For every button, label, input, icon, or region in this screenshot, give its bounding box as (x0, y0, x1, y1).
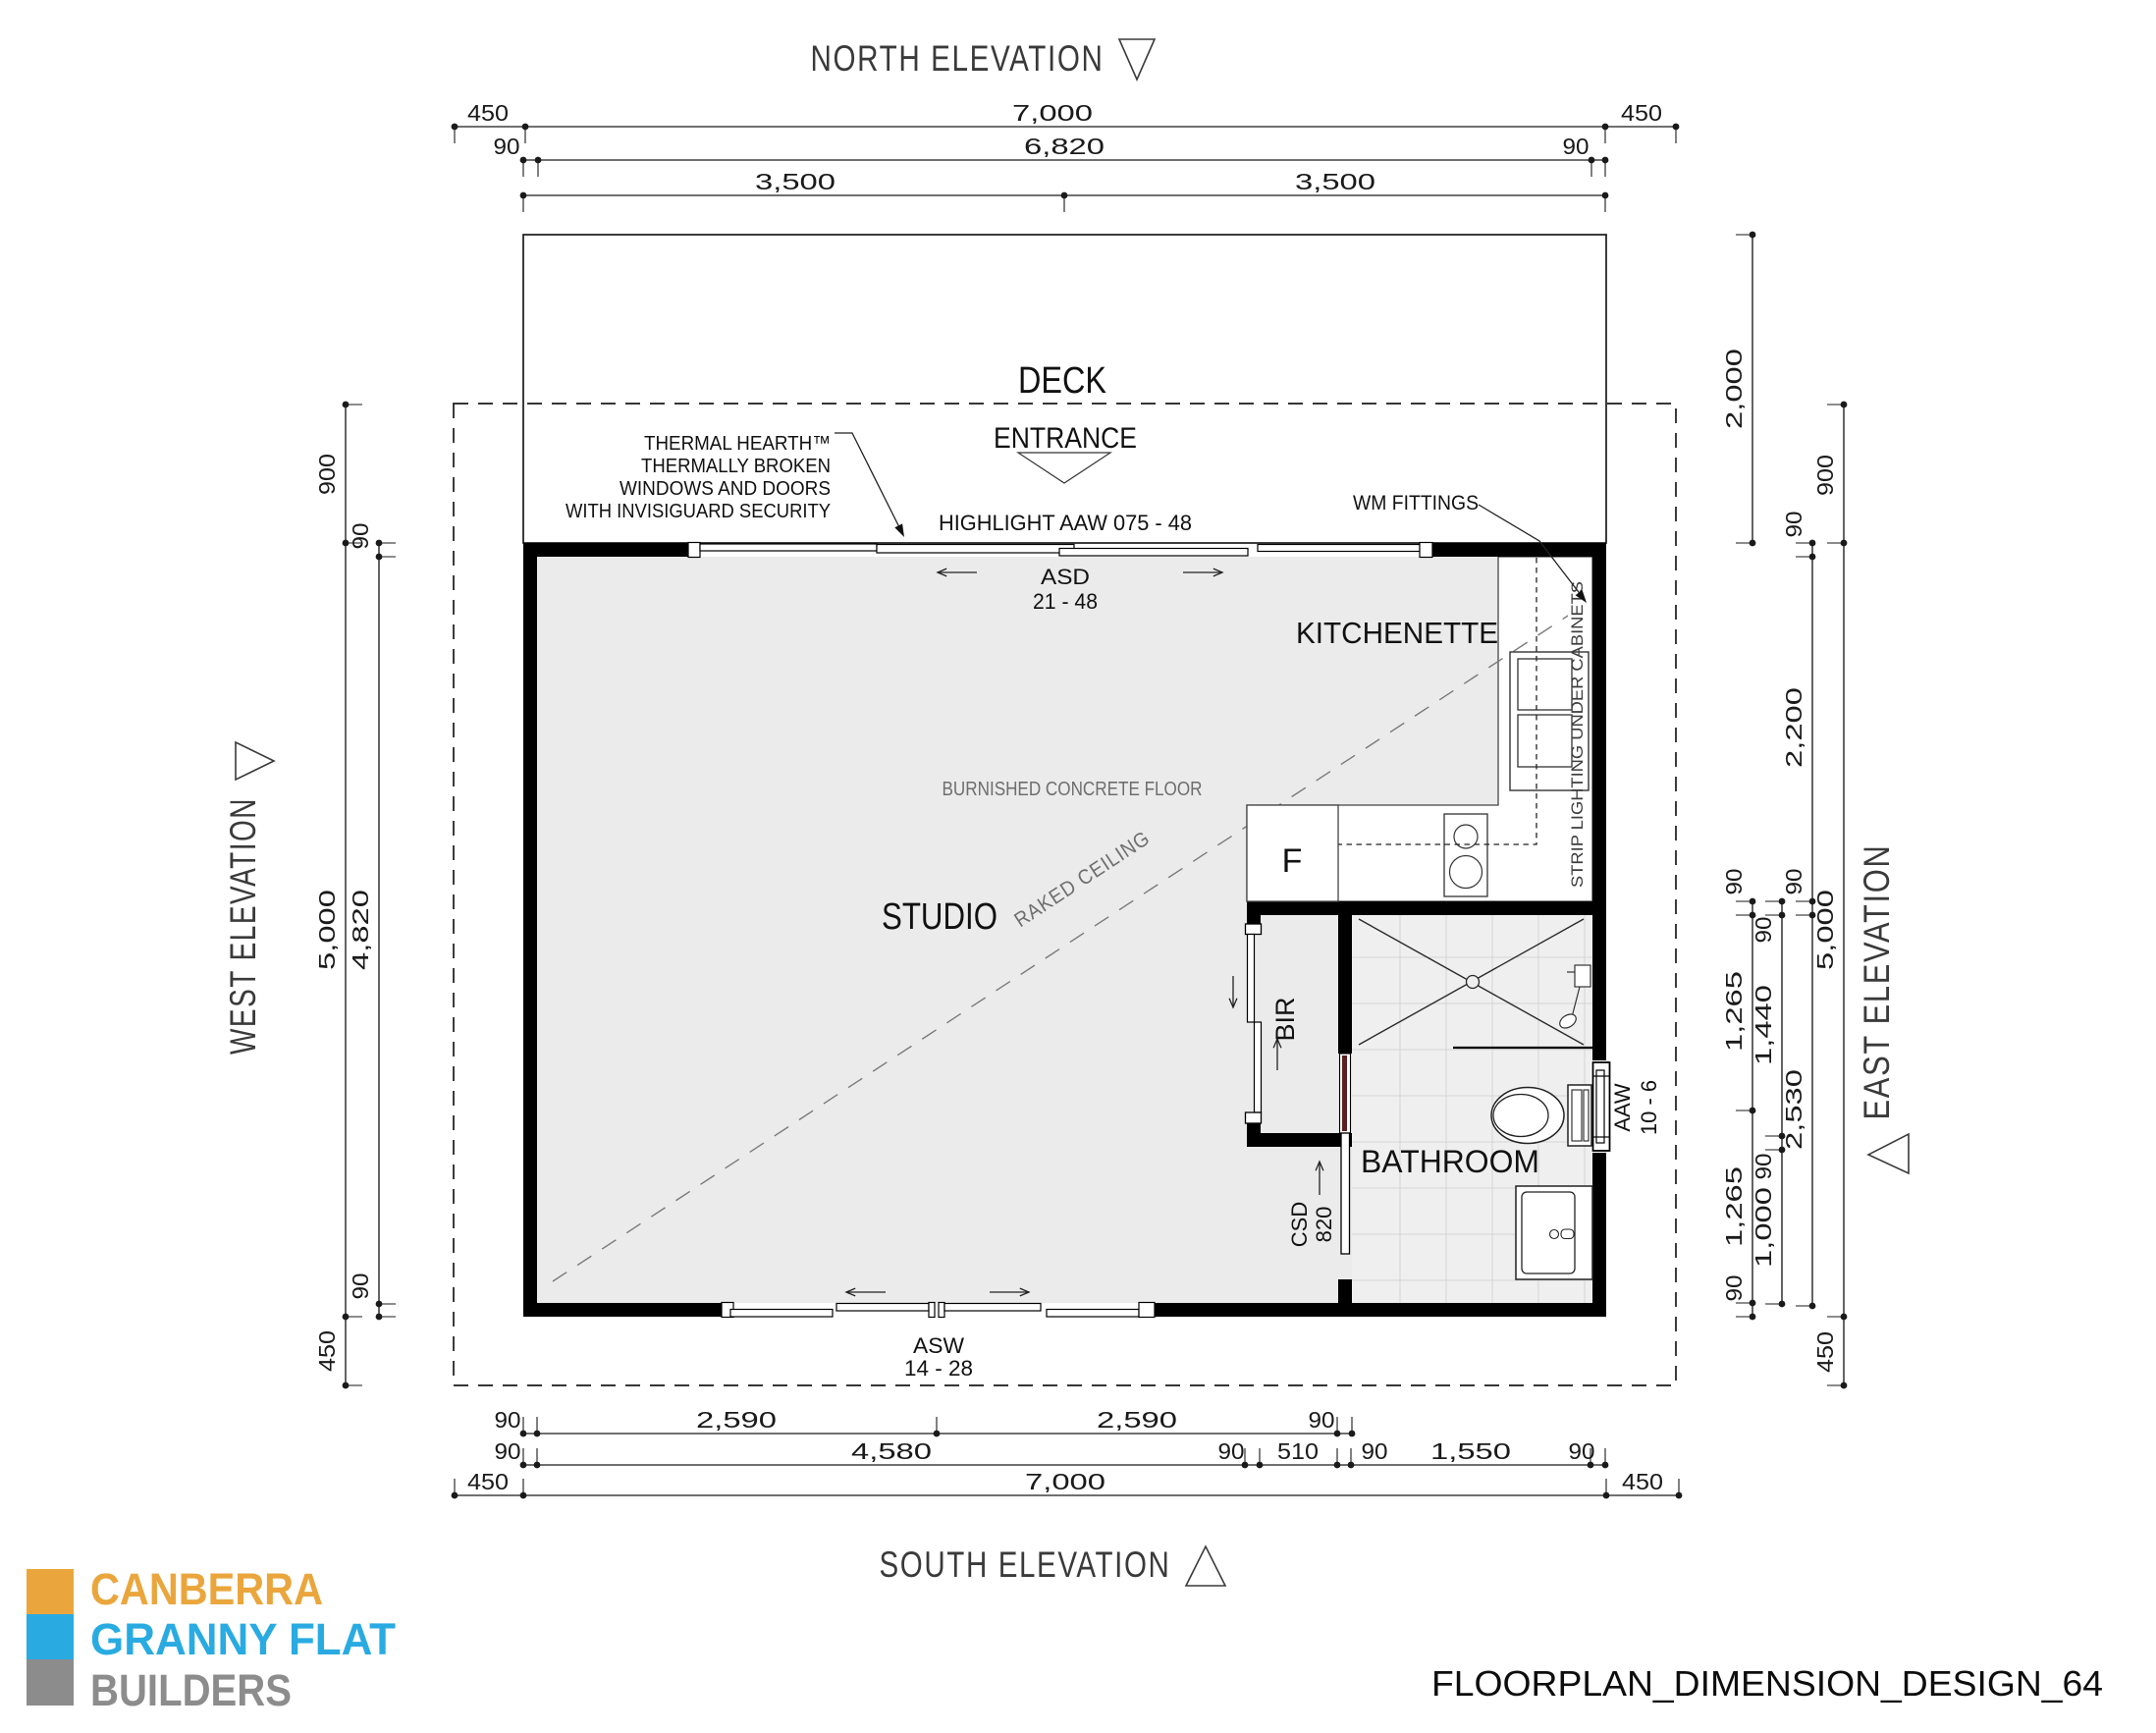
svg-text:3,500: 3,500 (755, 169, 835, 194)
svg-text:90: 90 (1751, 1154, 1776, 1180)
svg-text:BATHROOM: BATHROOM (1361, 1144, 1539, 1179)
svg-text:HIGHLIGHT AAW 075 - 48: HIGHLIGHT AAW 075 - 48 (939, 511, 1192, 535)
svg-text:4,820: 4,820 (348, 890, 373, 970)
svg-text:1,000: 1,000 (1751, 1187, 1776, 1268)
svg-text:450: 450 (1622, 1469, 1663, 1494)
svg-text:WM FITTINGS: WM FITTINGS (1353, 491, 1479, 514)
svg-text:90: 90 (495, 1407, 521, 1433)
svg-text:ASW: ASW (913, 1333, 964, 1358)
svg-text:NORTH ELEVATION: NORTH ELEVATION (811, 38, 1105, 79)
svg-text:14 - 28: 14 - 28 (904, 1356, 973, 1381)
svg-text:KITCHENETTE: KITCHENETTE (1296, 616, 1498, 650)
svg-text:STUDIO: STUDIO (882, 896, 997, 938)
svg-text:ASD: ASD (1041, 565, 1090, 589)
svg-text:90: 90 (1721, 1275, 1747, 1302)
svg-text:90: 90 (1362, 1438, 1388, 1464)
svg-text:DECK: DECK (1018, 360, 1106, 402)
svg-text:SOUTH ELEVATION: SOUTH ELEVATION (880, 1544, 1171, 1585)
svg-text:WEST ELEVATION: WEST ELEVATION (223, 797, 263, 1055)
svg-text:450: 450 (314, 1330, 340, 1372)
svg-text:90: 90 (1309, 1407, 1335, 1433)
svg-text:CSD: CSD (1287, 1202, 1312, 1247)
svg-text:THERMAL HEARTH™: THERMAL HEARTH™ (644, 432, 831, 455)
svg-text:FLOORPLAN_DIMENSION_DESIGN_64: FLOORPLAN_DIMENSION_DESIGN_64 (1431, 1663, 2103, 1704)
svg-text:90: 90 (494, 134, 520, 159)
svg-text:2,590: 2,590 (1097, 1407, 1177, 1433)
svg-text:820: 820 (1312, 1207, 1336, 1243)
svg-text:2,590: 2,590 (696, 1407, 777, 1433)
svg-text:BURNISHED CONCRETE FLOOR: BURNISHED CONCRETE FLOOR (943, 779, 1203, 800)
svg-text:900: 900 (314, 454, 340, 495)
svg-text:BIR: BIR (1270, 997, 1300, 1041)
svg-text:5,000: 5,000 (314, 890, 340, 970)
svg-text:THERMALLY BROKEN: THERMALLY BROKEN (641, 455, 831, 477)
svg-text:BUILDERS: BUILDERS (90, 1665, 292, 1715)
svg-text:90: 90 (1721, 869, 1747, 895)
svg-text:AAW: AAW (1610, 1083, 1635, 1132)
svg-text:2,000: 2,000 (1721, 349, 1747, 429)
svg-text:3,500: 3,500 (1295, 169, 1375, 194)
svg-text:STRIP LIGHTING UNDER CABINETS: STRIP LIGHTING UNDER CABINETS (1569, 581, 1587, 888)
svg-text:90: 90 (1569, 1438, 1595, 1464)
svg-text:90: 90 (495, 1438, 521, 1464)
svg-text:1,550: 1,550 (1430, 1438, 1511, 1464)
svg-text:CANBERRA: CANBERRA (90, 1564, 323, 1614)
svg-text:21 - 48: 21 - 48 (1033, 589, 1098, 614)
svg-text:7,000: 7,000 (1025, 1469, 1105, 1494)
svg-text:GRANNY FLAT: GRANNY FLAT (90, 1614, 396, 1664)
svg-text:2,200: 2,200 (1781, 687, 1806, 768)
svg-text:450: 450 (467, 1469, 509, 1494)
svg-text:ENTRANCE: ENTRANCE (994, 422, 1137, 455)
svg-text:900: 900 (1812, 455, 1838, 496)
svg-text:450: 450 (1812, 1331, 1838, 1373)
svg-text:90: 90 (1751, 917, 1776, 944)
svg-text:4,580: 4,580 (851, 1438, 932, 1464)
svg-text:6,820: 6,820 (1024, 134, 1105, 159)
svg-text:90: 90 (1563, 134, 1590, 159)
svg-text:450: 450 (467, 100, 509, 126)
svg-text:450: 450 (1621, 100, 1662, 126)
svg-text:510: 510 (1277, 1438, 1319, 1464)
svg-text:F: F (1282, 842, 1303, 880)
svg-text:1,440: 1,440 (1751, 985, 1776, 1065)
svg-text:2,530: 2,530 (1781, 1069, 1806, 1150)
svg-text:10 - 6: 10 - 6 (1637, 1080, 1661, 1135)
svg-text:7,000: 7,000 (1012, 100, 1093, 126)
svg-text:EAST ELEVATION: EAST ELEVATION (1857, 844, 1897, 1120)
svg-text:90: 90 (1218, 1438, 1245, 1464)
svg-text:WINDOWS AND DOORS: WINDOWS AND DOORS (620, 477, 831, 500)
svg-text:1,265: 1,265 (1721, 971, 1747, 1052)
svg-text:90: 90 (1781, 869, 1806, 895)
svg-text:5,000: 5,000 (1812, 890, 1838, 970)
svg-text:90: 90 (1781, 512, 1806, 538)
svg-text:90: 90 (348, 523, 373, 550)
svg-text:90: 90 (348, 1273, 373, 1300)
svg-text:WITH INVISIGUARD SECURITY: WITH INVISIGUARD SECURITY (566, 500, 831, 522)
svg-text:1,265: 1,265 (1721, 1166, 1747, 1247)
